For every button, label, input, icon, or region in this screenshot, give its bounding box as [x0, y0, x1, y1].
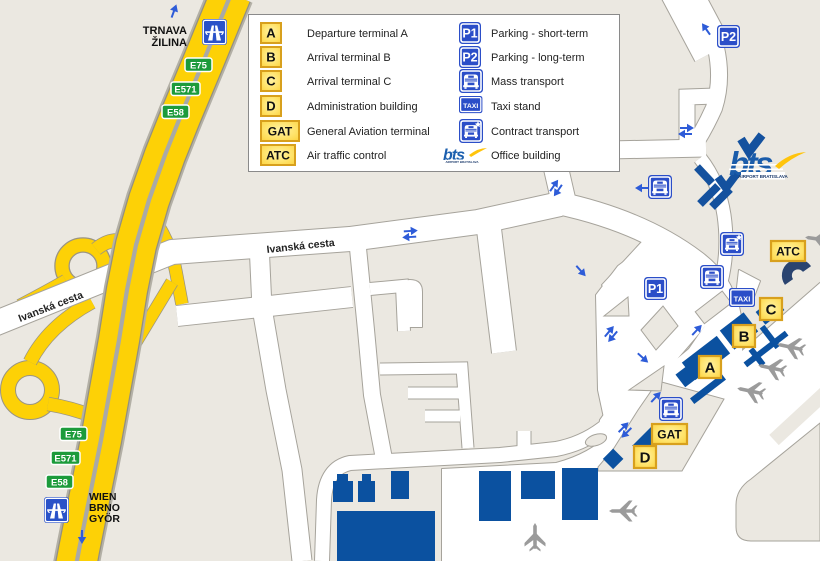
- svg-text:E58: E58: [51, 478, 68, 489]
- svg-text:Arrival terminal C: Arrival terminal C: [307, 76, 391, 88]
- svg-text:Parking - short-term: Parking - short-term: [491, 28, 588, 40]
- svg-text:D: D: [266, 99, 275, 114]
- svg-text:ŽILINA: ŽILINA: [152, 36, 187, 49]
- svg-text:General Aviation terminal: General Aviation terminal: [307, 126, 430, 138]
- svg-text:P2: P2: [462, 50, 477, 64]
- svg-text:TRNAVA: TRNAVA: [143, 25, 187, 37]
- svg-text:A: A: [266, 26, 276, 41]
- svg-text:D: D: [640, 449, 651, 466]
- svg-text:Air traffic control: Air traffic control: [307, 150, 386, 162]
- svg-text:Arrival terminal B: Arrival terminal B: [307, 52, 391, 64]
- svg-text:Taxi stand: Taxi stand: [491, 101, 541, 113]
- svg-text:Contract transport: Contract transport: [491, 126, 579, 138]
- svg-text:Mass transport: Mass transport: [491, 76, 564, 88]
- svg-text:AIRPORT BRATISLAVA: AIRPORT BRATISLAVA: [738, 174, 788, 179]
- svg-text:Departure terminal A: Departure terminal A: [307, 28, 409, 40]
- svg-text:B: B: [739, 328, 750, 345]
- svg-text:ATC: ATC: [266, 148, 290, 162]
- svg-text:GYÖR: GYÖR: [89, 512, 120, 525]
- svg-text:ATC: ATC: [776, 244, 800, 258]
- svg-text:C: C: [766, 301, 777, 318]
- svg-text:P1: P1: [648, 282, 663, 296]
- svg-text:E571: E571: [174, 85, 197, 96]
- svg-text:B: B: [266, 50, 275, 65]
- svg-text:E571: E571: [54, 454, 77, 465]
- svg-text:GAT: GAT: [657, 427, 682, 441]
- svg-text:P1: P1: [462, 26, 477, 40]
- svg-text:GAT: GAT: [268, 124, 293, 138]
- svg-text:Parking - long-term: Parking - long-term: [491, 52, 585, 64]
- svg-text:E75: E75: [65, 430, 83, 441]
- svg-text:C: C: [266, 74, 276, 89]
- svg-text:Office building: Office building: [491, 150, 561, 162]
- svg-text:A: A: [705, 359, 716, 376]
- svg-text:P2: P2: [721, 30, 736, 44]
- svg-text:AIRPORT BRATISLAVA: AIRPORT BRATISLAVA: [446, 160, 480, 164]
- svg-text:E58: E58: [167, 108, 184, 119]
- svg-text:E75: E75: [190, 61, 208, 72]
- svg-text:Administration building: Administration building: [307, 101, 418, 113]
